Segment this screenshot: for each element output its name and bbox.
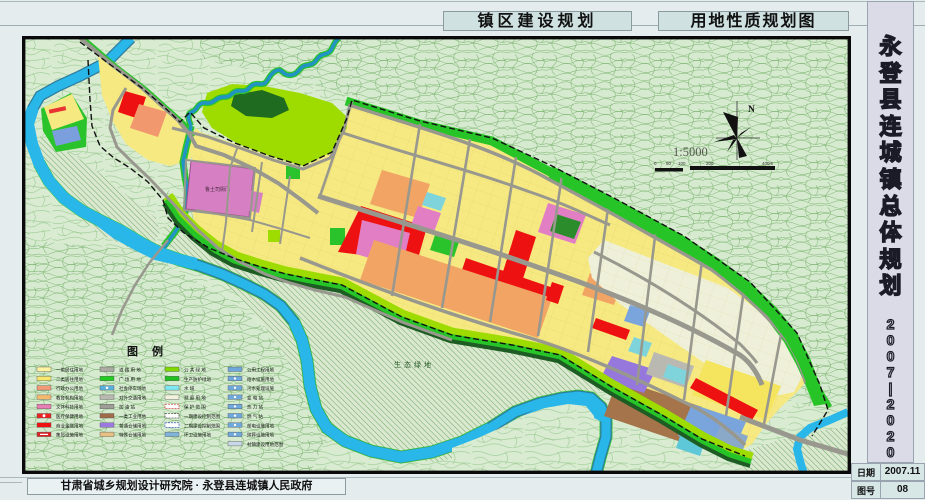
svg-text:一期建设控制范围: 一期建设控制范围 [184,413,220,420]
svg-text:一类工业用地: 一类工业用地 [119,413,146,420]
svg-text:水 域: 水 域 [184,385,195,391]
svg-text:400m: 400m [762,161,774,166]
svg-text:生态绿地: 生态绿地 [394,360,434,369]
svg-text:燃 气 站: 燃 气 站 [247,413,264,420]
svg-text:公用工程用地: 公用工程用地 [247,367,274,374]
svg-text:对外交通用地: 对外交通用地 [119,394,146,401]
svg-text:行政办公用地: 行政办公用地 [56,385,83,392]
svg-text:社会停车场地: 社会停车场地 [119,385,146,392]
svg-text:污水处理设施: 污水处理设施 [247,385,274,392]
svg-text:生产防护绿地: 生产防护绿地 [184,376,211,383]
svg-text:普通仓储用地: 普通仓储用地 [119,422,146,429]
svg-text:N: N [748,105,755,115]
svg-text:殡葬设施用地: 殡葬设施用地 [247,432,274,439]
svg-text:50: 50 [666,161,672,166]
svg-text:教育机构用地: 教育机构用地 [56,394,83,401]
svg-text:图例: 图例 [127,344,177,358]
svg-text:鲁土司衙门: 鲁土司衙门 [205,186,230,193]
svg-text:公 共 绿 地: 公 共 绿 地 [184,367,206,374]
svg-text:广 场 用 地: 广 场 用 地 [119,376,141,383]
svg-text:环卫设施用地: 环卫设施用地 [184,432,211,439]
svg-text:预 留 用 地: 预 留 用 地 [184,394,206,401]
svg-text:医疗保健用地: 医疗保健用地 [56,413,83,420]
svg-text:商业金融用地: 商业金融用地 [56,422,83,429]
svg-text:变 电 站: 变 电 站 [247,394,264,401]
svg-text:200: 200 [706,161,714,166]
svg-text:1:5000: 1:5000 [673,145,708,159]
svg-text:加 油 站: 加 油 站 [119,404,136,411]
svg-text:给水设施用地: 给水设施用地 [247,376,274,383]
svg-text:二类居住用地: 二类居住用地 [56,376,83,383]
svg-text:邮电设施用地: 邮电设施用地 [247,422,274,429]
svg-text:100: 100 [678,161,686,166]
svg-text:保 护 范 围: 保 护 范 围 [184,404,206,411]
svg-text:集贸设施用地: 集贸设施用地 [56,432,83,439]
svg-text:文体科技用地: 文体科技用地 [56,404,83,411]
svg-text:道 路 用 地: 道 路 用 地 [119,367,141,374]
svg-text:一类居住用地: 一类居住用地 [56,367,83,374]
svg-text:二期建设控制范围: 二期建设控制范围 [184,422,220,429]
svg-text:特殊仓储用地: 特殊仓储用地 [119,432,146,439]
svg-text:热 力 站: 热 力 站 [247,404,264,411]
svg-text:村镇建设用地范围: 村镇建设用地范围 [247,441,283,448]
